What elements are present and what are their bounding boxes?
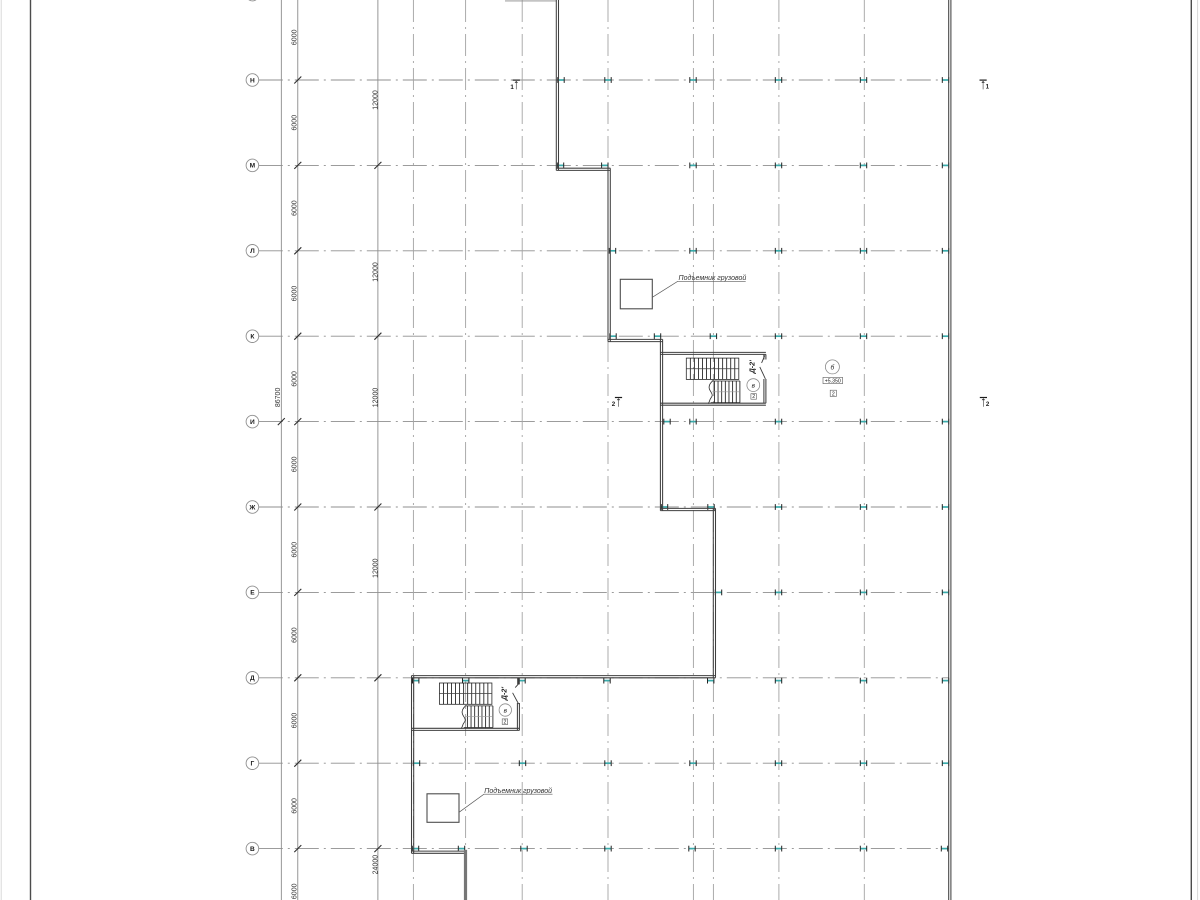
svg-text:12000: 12000 <box>372 388 379 408</box>
svg-text:6000: 6000 <box>292 115 299 131</box>
svg-text:2: 2 <box>504 719 507 725</box>
svg-text:6000: 6000 <box>292 627 299 643</box>
svg-text:6000: 6000 <box>292 542 299 558</box>
svg-text:2: 2 <box>832 391 835 397</box>
svg-text:6000: 6000 <box>292 883 299 899</box>
svg-text:6000: 6000 <box>292 286 299 302</box>
svg-text:В: В <box>250 846 255 853</box>
svg-text:6000: 6000 <box>292 29 299 45</box>
svg-text:1: 1 <box>986 84 990 91</box>
svg-text:б: б <box>831 363 835 371</box>
svg-text:+5.350: +5.350 <box>825 378 841 384</box>
svg-text:И: И <box>250 419 255 426</box>
svg-text:Г: Г <box>251 761 255 768</box>
svg-text:6000: 6000 <box>292 456 299 472</box>
svg-text:12000: 12000 <box>372 90 379 110</box>
svg-text:Подъемник грузовой: Подъемник грузовой <box>484 787 552 795</box>
svg-text:6000: 6000 <box>292 371 299 387</box>
svg-text:12000: 12000 <box>372 558 379 578</box>
svg-text:Ж: Ж <box>248 504 255 511</box>
svg-text:Л: Л <box>250 248 255 255</box>
svg-text:12000: 12000 <box>372 262 379 282</box>
svg-text:6000: 6000 <box>292 713 299 729</box>
svg-text:24000: 24000 <box>372 855 379 875</box>
svg-text:Д-2': Д-2' <box>748 360 757 375</box>
svg-text:Д: Д <box>250 675 255 682</box>
svg-text:6000: 6000 <box>292 798 299 814</box>
svg-text:Н: Н <box>250 77 255 84</box>
svg-text:2: 2 <box>986 401 990 408</box>
svg-text:2: 2 <box>612 401 616 408</box>
svg-text:Е: Е <box>250 590 255 597</box>
svg-text:Д-2': Д-2' <box>499 687 508 702</box>
svg-text:2: 2 <box>752 394 755 400</box>
svg-text:86700: 86700 <box>275 388 282 408</box>
svg-text:6000: 6000 <box>292 200 299 216</box>
svg-text:М: М <box>250 163 256 170</box>
svg-text:1: 1 <box>510 84 514 91</box>
svg-text:Подъемник грузовой: Подъемник грузовой <box>679 274 747 282</box>
